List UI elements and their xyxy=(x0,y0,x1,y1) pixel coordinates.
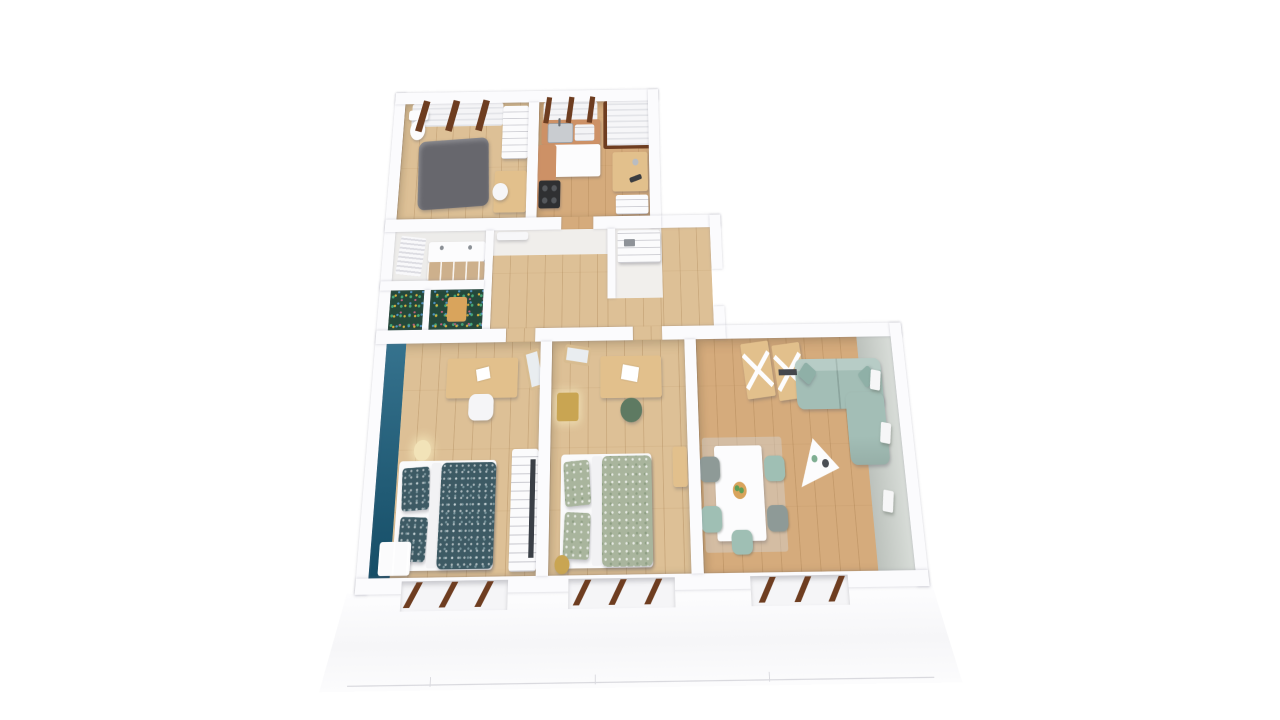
vanity-drawers xyxy=(427,261,485,280)
bedroom2-gold-nightstand xyxy=(557,392,579,421)
bedroom1-chair xyxy=(468,394,494,421)
floorplan-stage xyxy=(322,0,918,720)
fruit-bowl xyxy=(732,482,747,500)
hall-bedrooms-wall xyxy=(375,329,506,345)
floorplan-render-canvas: { "meta": { "label": "3D rendered floor … xyxy=(0,0,1280,720)
wall-sconce xyxy=(883,489,894,513)
dining-chair xyxy=(701,506,723,533)
closet-floor-lower xyxy=(608,298,664,327)
wc-wood-step xyxy=(447,297,468,322)
corridor-right-wall xyxy=(709,215,722,269)
kitchen-shelf xyxy=(616,195,649,215)
dining-chair xyxy=(764,455,786,481)
bedroom2-desk-paper xyxy=(621,364,639,382)
kitchen-desk xyxy=(612,152,648,192)
gray-floor-mattress xyxy=(417,137,488,211)
bedroom1-door-gap xyxy=(506,328,536,342)
facade-seam xyxy=(595,675,596,685)
bedroom2-duvet xyxy=(602,455,653,567)
wall-sconce xyxy=(880,422,891,445)
vanity-top xyxy=(428,241,486,262)
bedroom2-console xyxy=(672,446,688,487)
hall-bedrooms-wall xyxy=(535,327,633,342)
bedroom1-duvet xyxy=(436,462,496,570)
bedroom1-pillow xyxy=(401,466,430,511)
bedroom1-nightstand xyxy=(377,542,411,576)
kitchen-right-wall xyxy=(648,89,662,228)
dish-rack xyxy=(575,124,595,141)
bedroom2-pillow xyxy=(562,512,590,560)
bedroom2-mirror xyxy=(563,344,591,366)
top-rooms-bottom-wall xyxy=(593,215,661,228)
kitchen-desk-items xyxy=(632,159,638,166)
wall-sconce xyxy=(870,369,881,391)
kitchen-door-gap xyxy=(561,216,593,229)
closet-left-wall xyxy=(607,229,615,299)
closet-stored-item xyxy=(624,239,635,246)
dining-chair xyxy=(699,456,720,482)
coffee-table-cup xyxy=(811,455,818,463)
bedroom2-door-gap xyxy=(633,326,663,340)
dining-chair xyxy=(766,505,788,532)
coffee-table-decor xyxy=(822,459,829,468)
bathroom-wc-divider xyxy=(380,280,484,291)
hall-bedrooms-wall xyxy=(662,325,726,340)
kitchen-sink xyxy=(547,123,573,143)
floorplan-scene xyxy=(292,86,954,692)
kitchen-faucet xyxy=(558,118,560,126)
dining-chair xyxy=(731,530,753,555)
bookshelf-books xyxy=(778,369,797,375)
corridor-floor xyxy=(661,227,714,326)
hall-double-door xyxy=(497,232,529,241)
wc-jungle-floor xyxy=(388,289,484,330)
bedroom2-pillow xyxy=(563,459,591,507)
living-top-wall xyxy=(725,323,902,339)
utility-wardrobe xyxy=(501,106,528,159)
cooktop xyxy=(538,180,560,208)
